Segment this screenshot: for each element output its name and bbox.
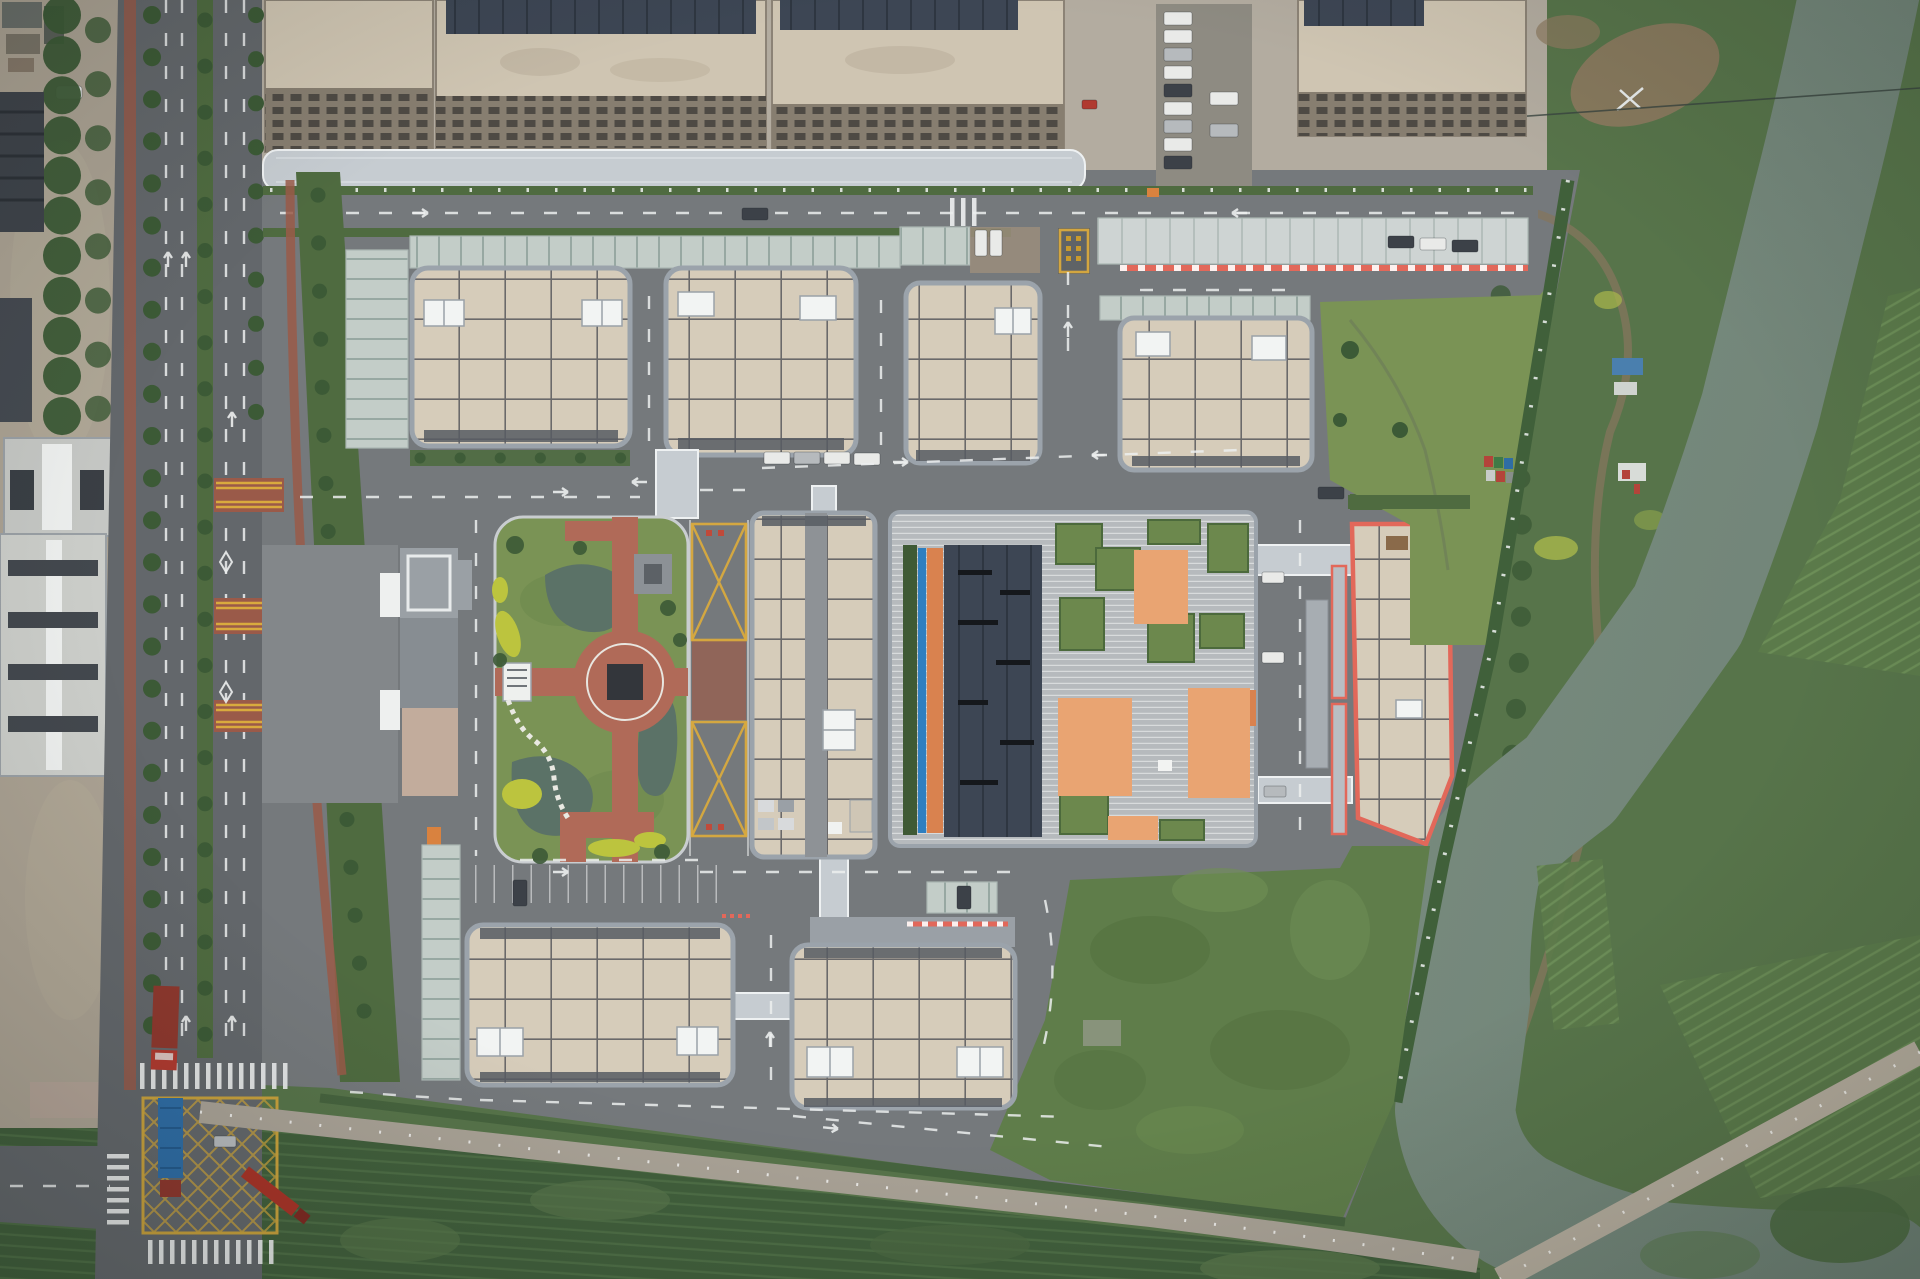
aerial-scene [0, 0, 1920, 1279]
aerial-photo [0, 0, 1920, 1279]
vignette [0, 0, 1920, 1279]
